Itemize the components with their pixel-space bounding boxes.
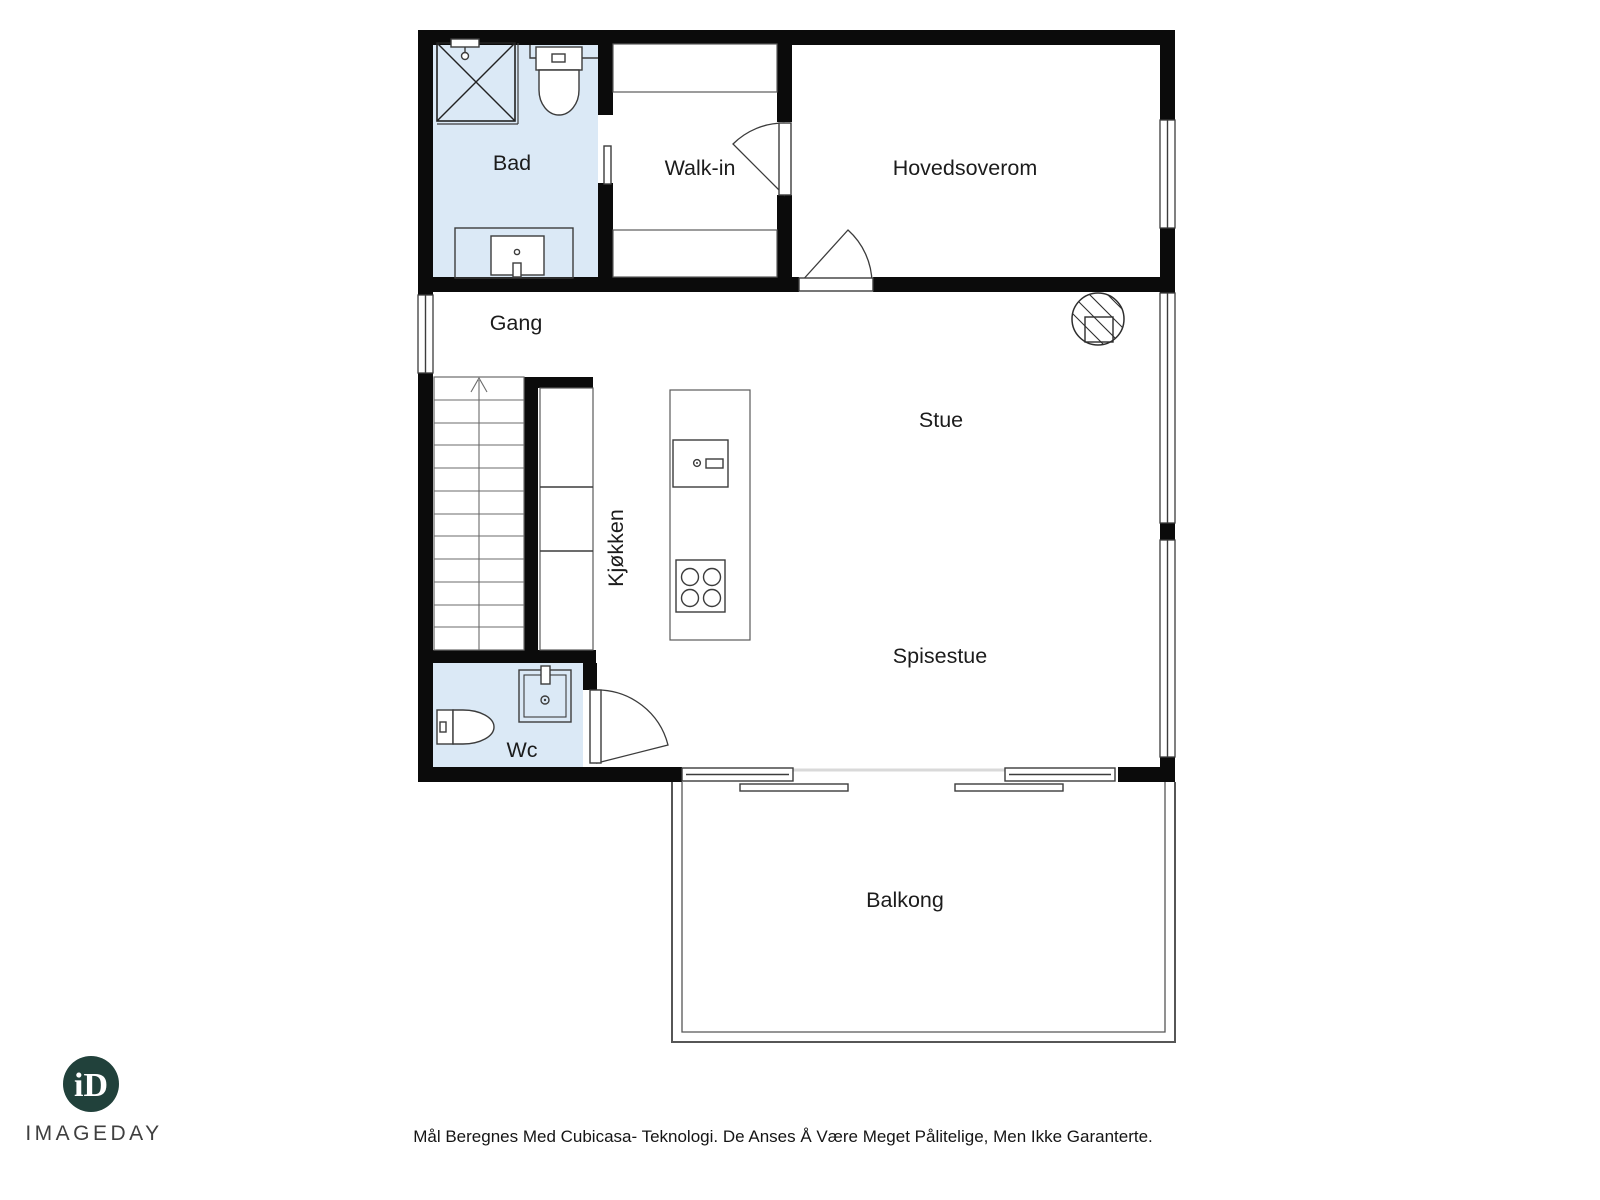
sink-fixture-island — [673, 440, 728, 487]
window-stue-lower — [1160, 540, 1175, 757]
floor-plan-canvas: Bad Walk-in Hovedsoverom Gang Stue Kjøkk… — [0, 0, 1600, 1200]
stove-fixture — [676, 560, 725, 612]
kitchen-counter — [540, 388, 593, 650]
label-wc: Wc — [506, 738, 537, 762]
label-hovedsoverom: Hovedsoverom — [893, 156, 1038, 180]
label-kjokken: Kjøkken — [604, 509, 628, 587]
floor-plan-page: Bad Walk-in Hovedsoverom Gang Stue Kjøkk… — [0, 0, 1600, 1200]
toilet-fixture-wc — [437, 710, 494, 744]
window-stue-upper — [1160, 293, 1175, 523]
logo-wordmark: IMAGEDAY — [25, 1122, 162, 1145]
wardrobe-top — [613, 44, 777, 92]
label-stue: Stue — [919, 408, 963, 432]
label-gang: Gang — [490, 311, 543, 335]
window-gang — [418, 295, 433, 373]
background — [0, 0, 1600, 1200]
label-walk-in: Walk-in — [665, 156, 736, 180]
label-bad: Bad — [493, 151, 531, 175]
wardrobe-bottom — [613, 230, 777, 277]
logo-monogram: iD — [74, 1067, 108, 1104]
label-balkong: Balkong — [866, 888, 944, 912]
footer-disclaimer: Mål Beregnes Med Cubicasa- Teknologi. De… — [413, 1127, 1153, 1146]
label-spisestue: Spisestue — [893, 644, 987, 668]
window-hovedsoverom — [1160, 120, 1175, 228]
kitchen-island — [670, 390, 750, 640]
door-bad-sliding — [604, 146, 611, 184]
stairs — [434, 377, 524, 650]
